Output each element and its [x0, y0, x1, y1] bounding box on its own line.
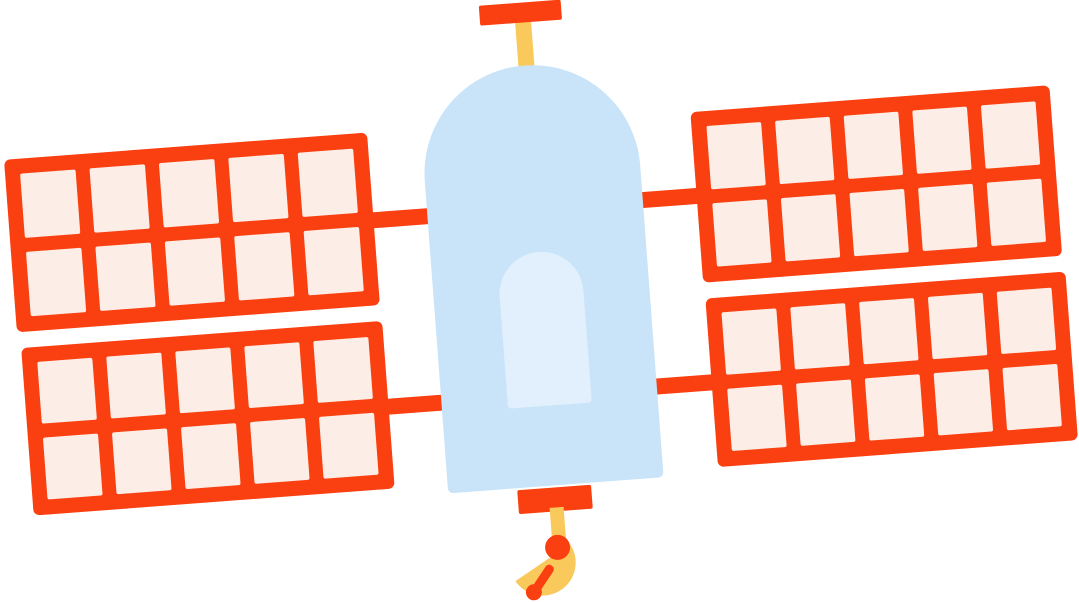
solar-cell	[721, 308, 781, 374]
solar-cell	[981, 101, 1040, 168]
satellite-group	[0, 0, 1079, 602]
solar-cell	[175, 347, 235, 413]
solar-cell	[165, 237, 225, 305]
solar-cell	[106, 353, 166, 419]
solar-cell	[706, 122, 765, 189]
solar-cell	[712, 199, 771, 266]
solar-cell	[26, 248, 86, 316]
solar-cell	[159, 159, 219, 227]
solar-cell	[181, 423, 241, 489]
solar-cell	[298, 149, 358, 217]
solar-cell	[234, 232, 294, 300]
solar-cell	[934, 369, 994, 435]
solar-cell	[781, 194, 840, 261]
solar-cell	[37, 358, 97, 424]
solar-cell	[865, 374, 925, 440]
solar-cell	[997, 288, 1057, 354]
solar-cell	[250, 418, 310, 484]
solar-cell	[987, 179, 1046, 246]
solar-cell	[89, 164, 149, 232]
solar-cell	[727, 385, 787, 451]
body-window	[497, 249, 592, 409]
solar-cell	[43, 434, 103, 500]
solar-cell	[1002, 364, 1062, 430]
solar-cell	[244, 342, 304, 408]
solar-panel-left-bottom	[21, 321, 395, 516]
solar-cell	[928, 293, 988, 359]
solar-cell	[112, 428, 172, 494]
top-antenna-cap	[479, 0, 562, 26]
solar-panel-right-top	[690, 85, 1062, 283]
solar-cell	[319, 413, 379, 479]
solar-cell	[849, 189, 908, 256]
satellite-illustration	[0, 0, 1079, 602]
solar-cell	[859, 298, 919, 364]
solar-cell	[775, 117, 834, 184]
satellite-canvas	[0, 0, 1079, 602]
solar-cell	[790, 303, 850, 369]
solar-cell	[313, 337, 373, 403]
solar-cell	[228, 154, 288, 222]
solar-cell	[796, 379, 856, 445]
solar-cell	[844, 112, 903, 179]
solar-panel-right-bottom	[705, 272, 1078, 468]
solar-cell	[95, 243, 155, 311]
solar-cell	[918, 184, 977, 251]
solar-panel-left-top	[4, 133, 380, 333]
solar-cell	[304, 227, 364, 295]
solar-cell	[20, 169, 80, 237]
solar-cell	[912, 106, 971, 173]
